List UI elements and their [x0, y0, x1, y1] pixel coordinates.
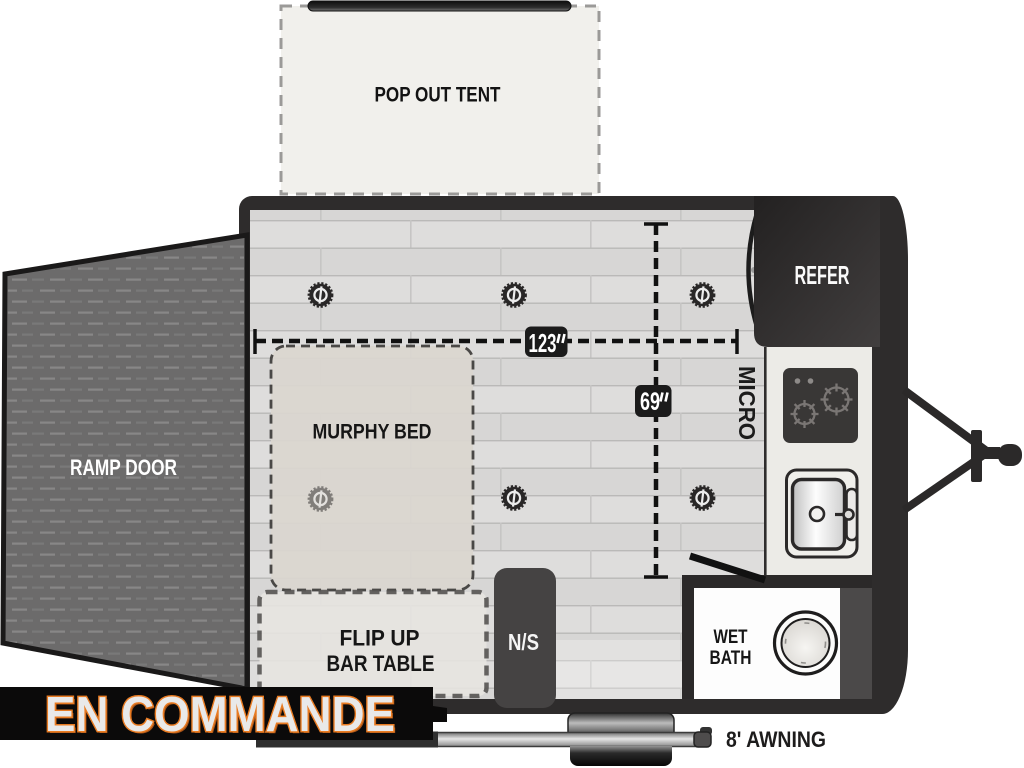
svg-text:69: 69 — [640, 388, 660, 416]
svg-text:N/S: N/S — [508, 629, 539, 655]
svg-text:POP OUT TENT: POP OUT TENT — [375, 83, 501, 107]
svg-text:FLIP UP: FLIP UP — [340, 626, 420, 651]
svg-text:RAMP DOOR: RAMP DOOR — [70, 455, 177, 480]
svg-text:BAR TABLE: BAR TABLE — [327, 651, 435, 676]
svg-text:EN COMMANDE: EN COMMANDE — [45, 688, 395, 742]
svg-text:MURPHY BED: MURPHY BED — [313, 420, 432, 444]
svg-text:BATH: BATH — [710, 648, 752, 669]
svg-text:8' AWNING: 8' AWNING — [726, 727, 826, 752]
svg-text:WET: WET — [714, 627, 748, 648]
svg-text:MICRO: MICRO — [734, 366, 760, 440]
svg-text:123: 123 — [529, 328, 557, 358]
svg-text:REFER: REFER — [795, 260, 850, 290]
